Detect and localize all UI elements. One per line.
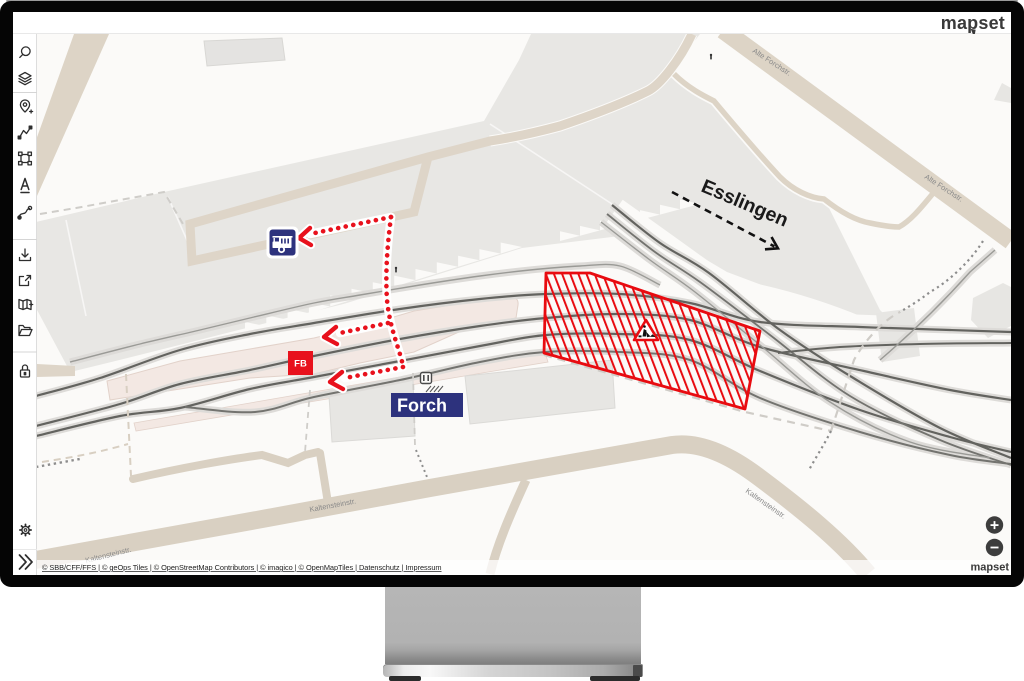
svg-text:mapset: mapset [970,562,1009,574]
svg-text:FB: FB [294,359,307,370]
svg-text:© SBB/CFF/FFS | © geOps Tiles: © SBB/CFF/FFS | © geOps Tiles | © OpenSt… [42,563,442,572]
svg-text:Forch: Forch [397,396,447,416]
